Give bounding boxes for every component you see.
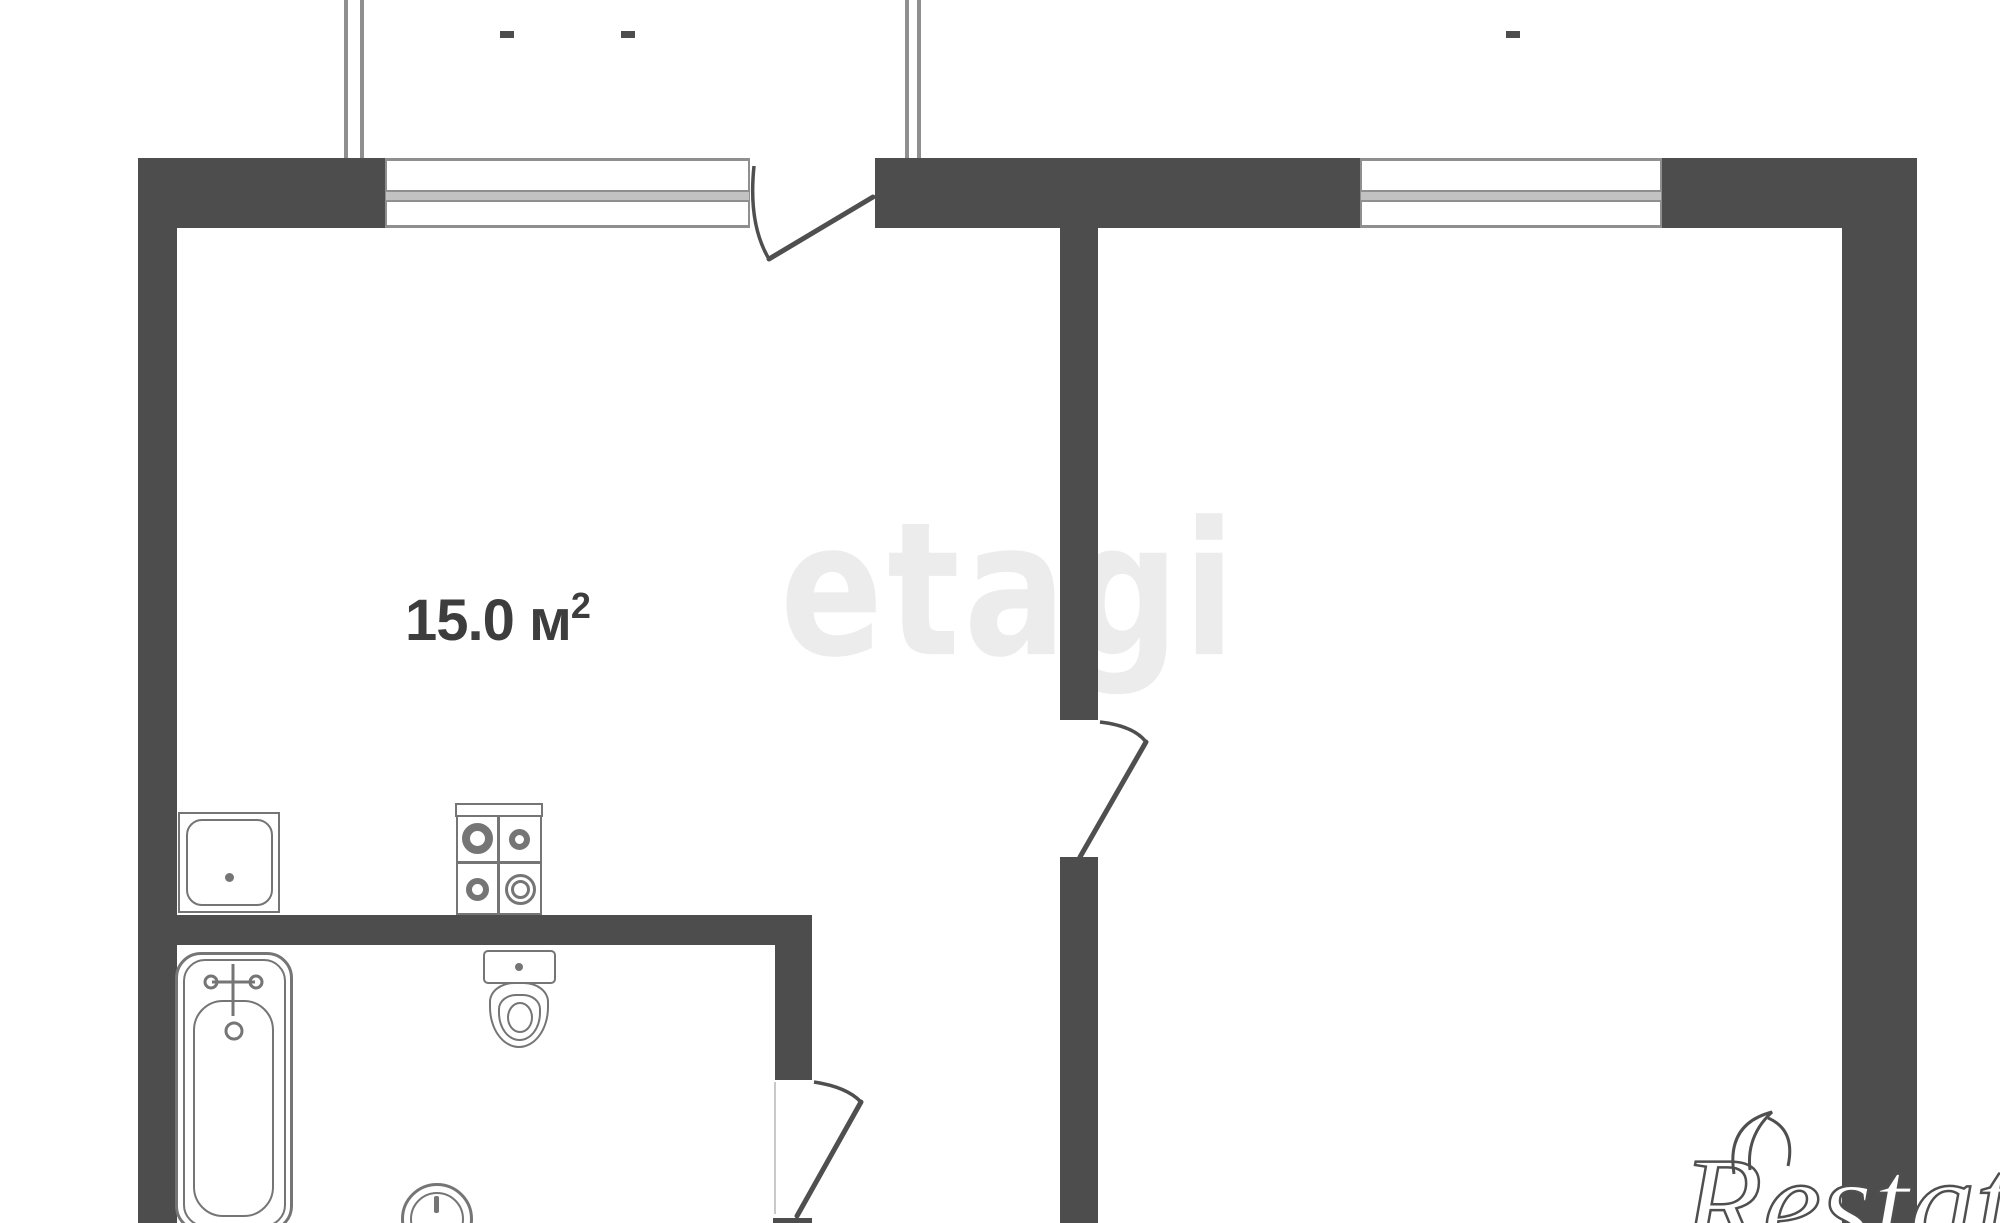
window-kitchen: [385, 158, 750, 228]
room-area-label: 15.0 м2: [405, 585, 590, 654]
floor-plan: etagi: [0, 0, 2000, 1223]
wall-bathroom-vertical: [775, 945, 812, 1080]
area-unit: м: [529, 588, 571, 653]
stove-divider-vertical: [497, 817, 500, 913]
wall-interior-lower: [1060, 857, 1098, 1223]
watermark-restate: Restate: [1682, 1112, 2000, 1223]
wall-top-middle: [875, 158, 1360, 228]
window-room: [1360, 158, 1662, 228]
room-door-arc: [1100, 722, 1146, 742]
balcony-rail-line: [917, 0, 921, 158]
stove-burner: [462, 823, 493, 854]
sink-drain-dot: [225, 873, 234, 882]
watermark-flourish-icon: [1726, 1108, 1836, 1180]
bathroom-door-arc: [814, 1082, 861, 1102]
stove-burner-large-inner: [511, 880, 530, 899]
balcony-rail-line: [905, 0, 909, 158]
window-tick-mark: [500, 31, 514, 38]
stove-divider-horizontal: [458, 861, 540, 864]
window-frame-band: [1361, 190, 1661, 202]
toilet-bowl-center: [507, 1002, 533, 1033]
wall-right: [1842, 228, 1917, 1223]
stove-burner: [509, 829, 530, 850]
area-value: 15.0: [405, 588, 514, 653]
balcony-rail-line: [344, 0, 348, 158]
window-tick-mark: [1506, 31, 1520, 38]
wall-interior-upper: [1060, 228, 1098, 720]
washing-machine-pointer: [434, 1196, 439, 1213]
area-superscript: 2: [571, 585, 590, 626]
window-frame-band: [386, 190, 749, 202]
watermark-etagi: etagi: [780, 498, 1239, 683]
room-door-leaf: [1080, 742, 1146, 857]
balcony-door-leaf: [769, 197, 873, 259]
balcony-door-arc: [753, 166, 769, 259]
kitchen-sink-basin: [186, 819, 273, 906]
wall-top-right: [1662, 158, 1917, 228]
bathtub-basin: [193, 1000, 274, 1217]
wall-top-left: [138, 158, 385, 228]
toilet-tank-button: [515, 963, 523, 971]
wall-bottom-stub: [773, 1218, 812, 1223]
wall-bathroom-horizontal: [177, 915, 812, 945]
balcony-rail-line: [360, 0, 364, 158]
bathroom-door-leaf: [797, 1102, 861, 1216]
stove-burner: [466, 878, 489, 901]
window-tick-mark: [621, 31, 635, 38]
wall-left: [138, 228, 177, 1223]
